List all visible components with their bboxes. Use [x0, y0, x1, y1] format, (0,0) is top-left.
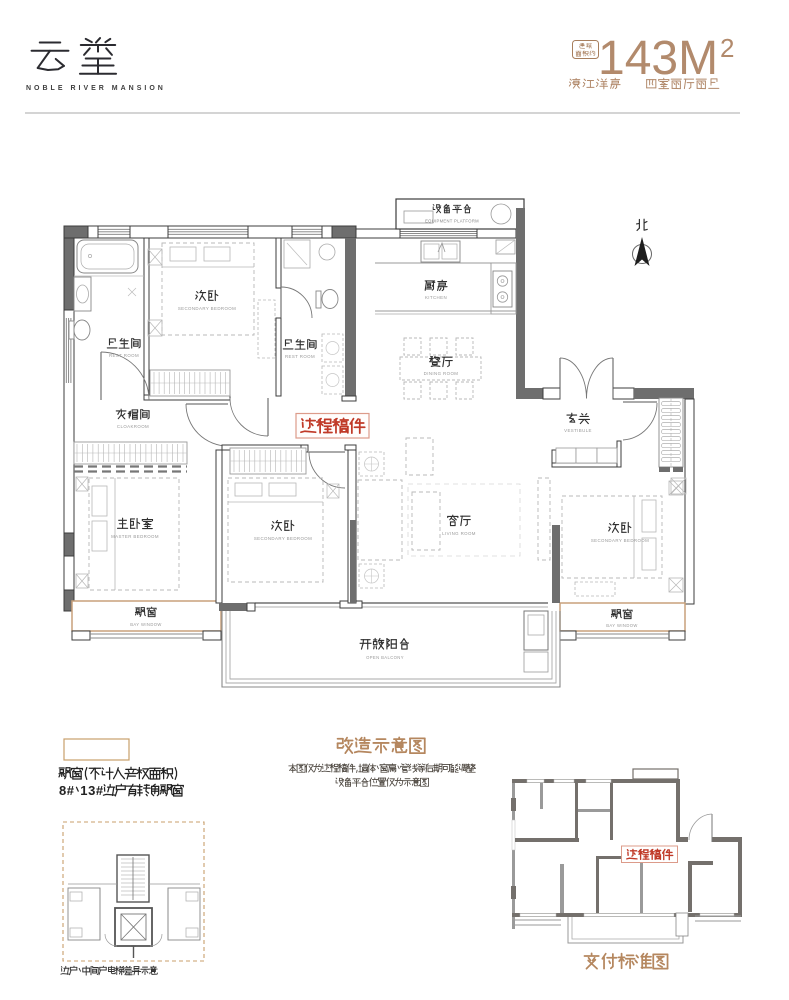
svg-text:SECONDARY BEDROOM: SECONDARY BEDROOM	[591, 538, 649, 543]
svg-text:8: 8	[59, 783, 66, 798]
svg-text:BAY WINDOW: BAY WINDOW	[606, 623, 638, 628]
svg-text:SECONDARY BEDROOM: SECONDARY BEDROOM	[178, 306, 236, 311]
svg-text:VESTIBULE: VESTIBULE	[564, 428, 592, 433]
svg-text:EQUIPMENT PLATFORM: EQUIPMENT PLATFORM	[425, 219, 479, 224]
svg-text:143M: 143M	[598, 32, 718, 85]
svg-text:LIVING ROOM: LIVING ROOM	[442, 531, 476, 536]
svg-text:DINING ROOM: DINING ROOM	[424, 371, 459, 376]
svg-text:NOBLE RIVER MANSION: NOBLE RIVER MANSION	[26, 85, 166, 92]
svg-text:CLOAKROOM: CLOAKROOM	[117, 424, 149, 429]
svg-text:2: 2	[720, 33, 734, 63]
svg-text:SECONDARY BEDROOM: SECONDARY BEDROOM	[254, 536, 312, 541]
svg-text:MASTER BEDROOM: MASTER BEDROOM	[111, 534, 159, 539]
svg-text:REST ROOM: REST ROOM	[285, 354, 315, 359]
svg-text:BAY WINDOW: BAY WINDOW	[130, 622, 162, 627]
svg-text:#: #	[67, 783, 75, 798]
svg-text:#: #	[96, 783, 104, 798]
svg-text:REST ROOM: REST ROOM	[109, 353, 139, 358]
svg-text:1: 1	[80, 783, 87, 798]
svg-text:OPEN BALCONY: OPEN BALCONY	[366, 655, 404, 660]
svg-text:3: 3	[88, 783, 95, 798]
svg-text:KITCHEN: KITCHEN	[425, 295, 447, 300]
